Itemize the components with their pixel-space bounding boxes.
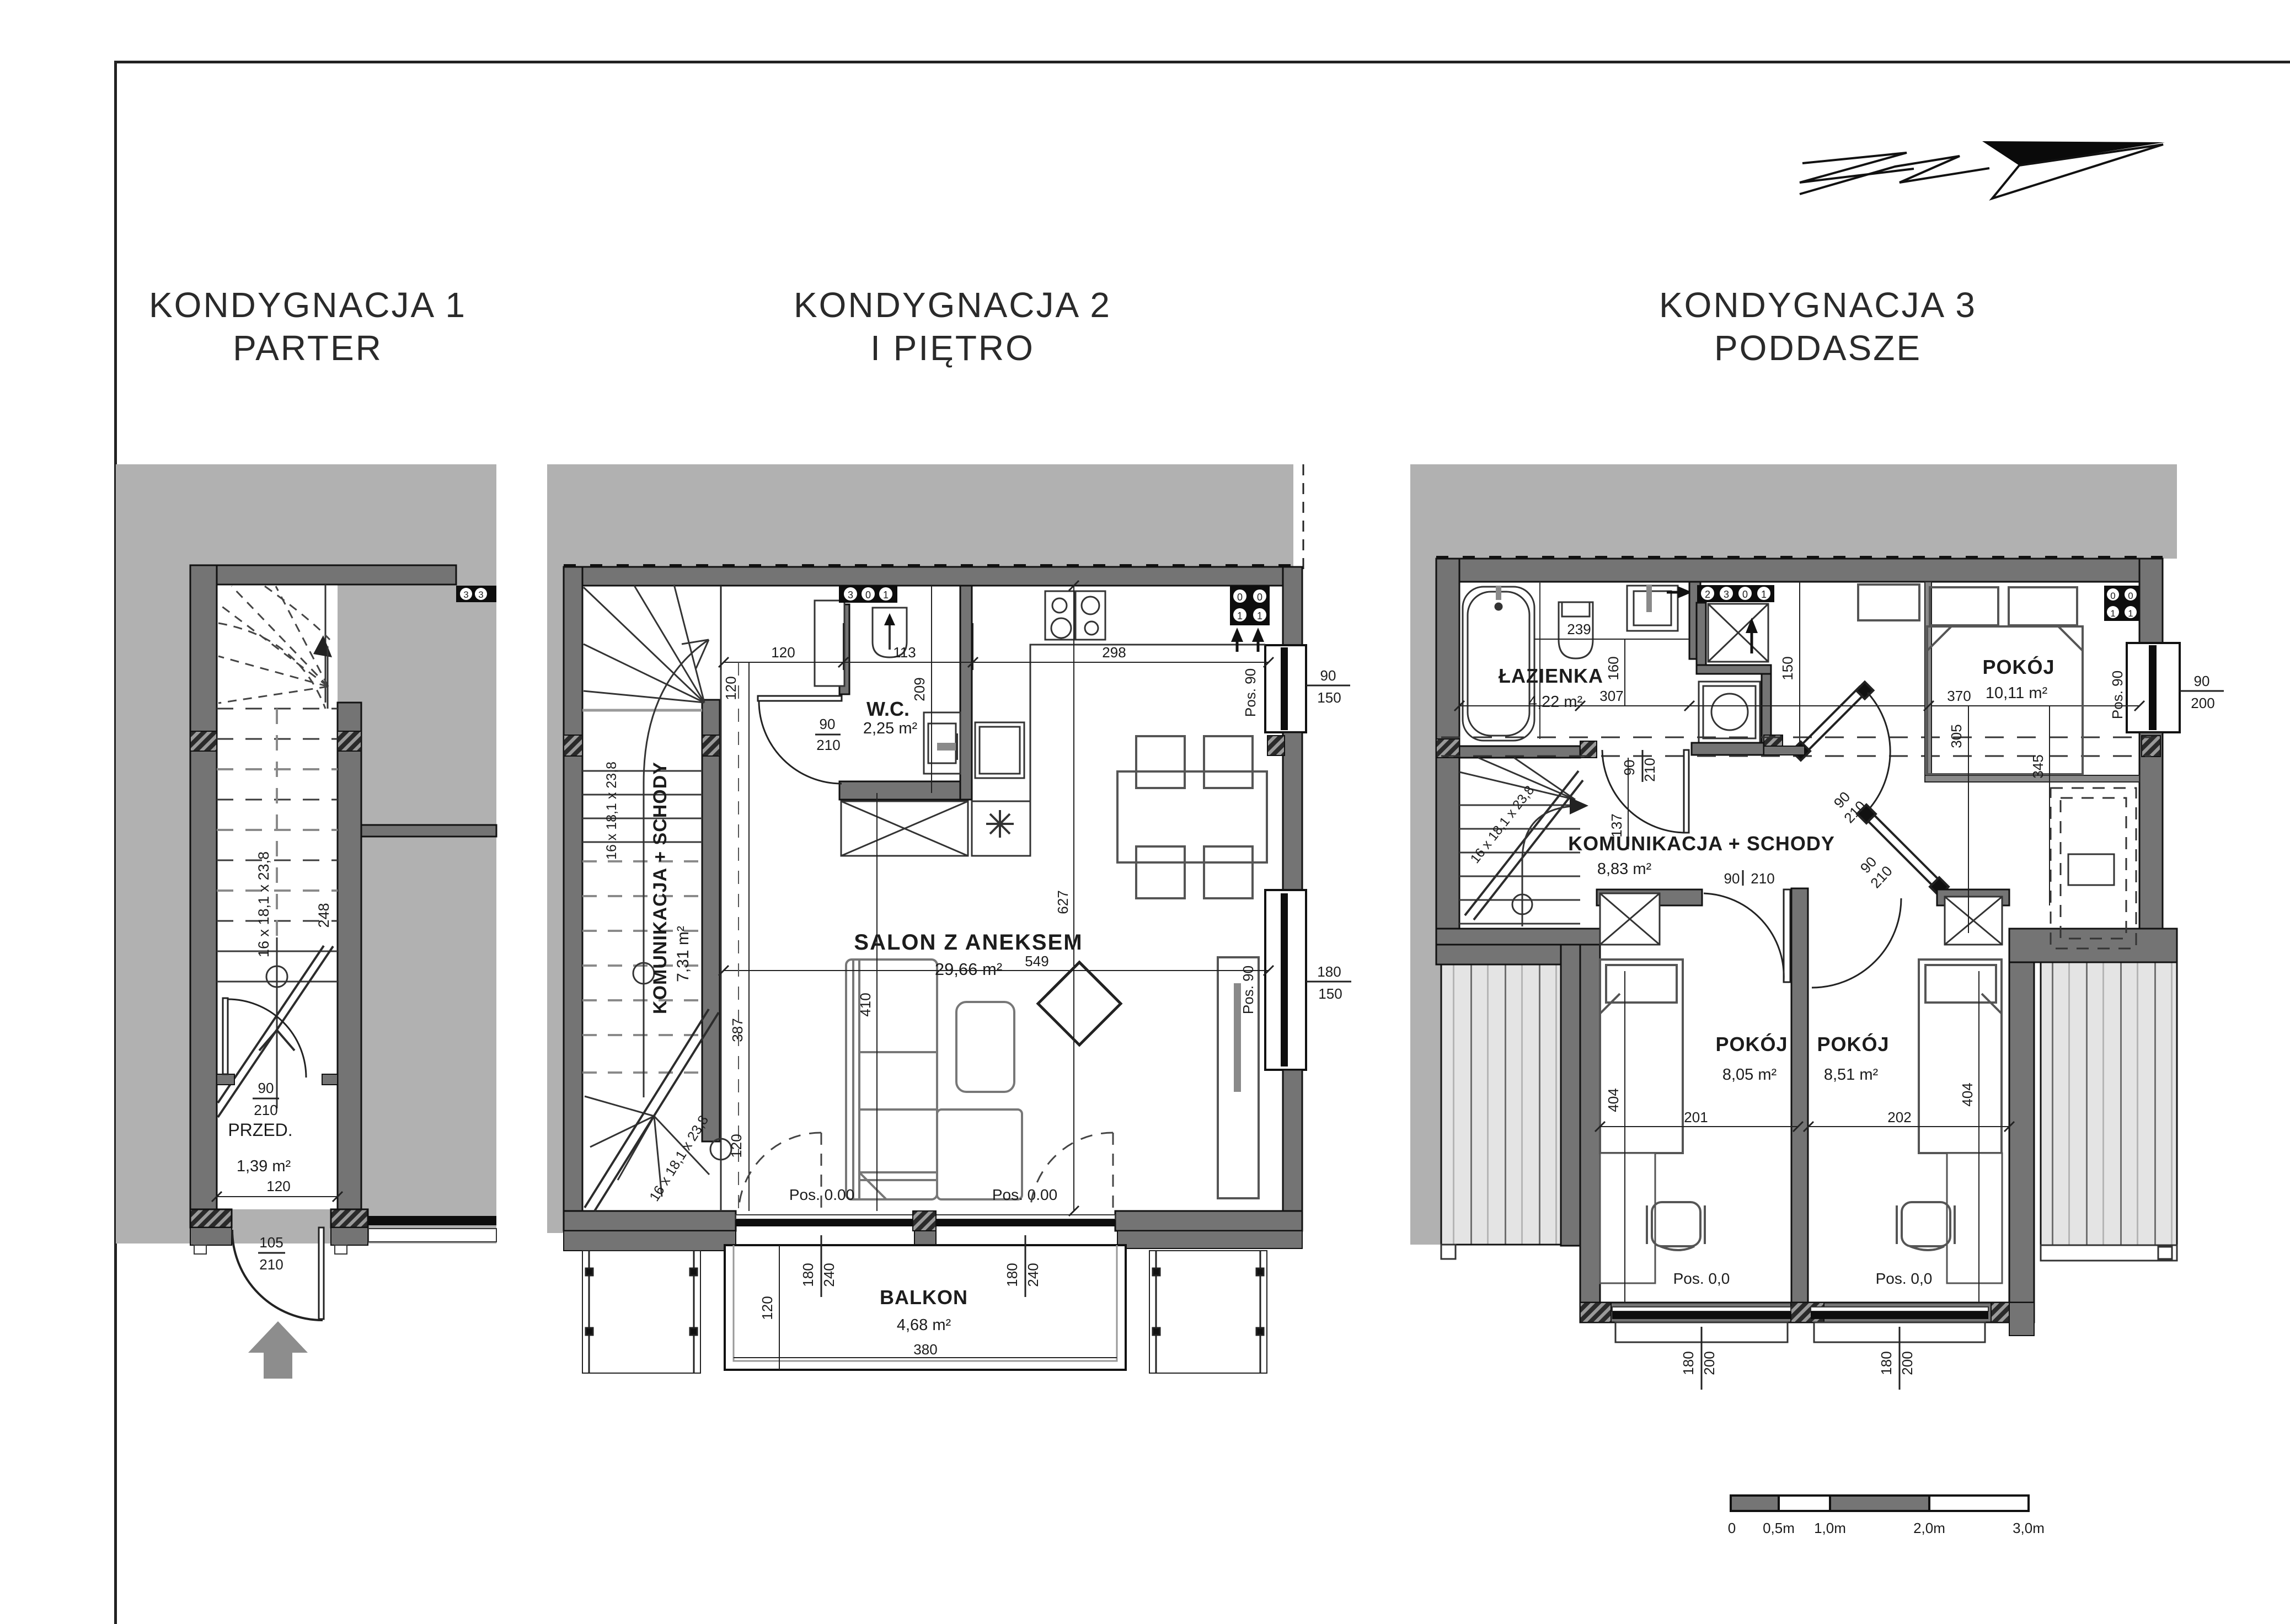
svg-text:180: 180 (1317, 963, 1341, 980)
svg-text:180: 180 (800, 1263, 816, 1287)
svg-text:BALKON: BALKON (880, 1286, 968, 1309)
svg-text:Pos. 90: Pos. 90 (1242, 668, 1259, 717)
svg-text:200: 200 (1899, 1351, 1916, 1375)
svg-text:90: 90 (1621, 760, 1638, 776)
svg-text:370: 370 (1947, 688, 1971, 704)
svg-text:200: 200 (2191, 695, 2214, 711)
svg-text:120: 120 (266, 1178, 290, 1194)
svg-text:2,25 m²: 2,25 m² (863, 720, 918, 737)
svg-text:240: 240 (1025, 1263, 1041, 1287)
svg-text:8,51 m²: 8,51 m² (1824, 1066, 1879, 1084)
svg-text:SALON Z ANEKSEM: SALON Z ANEKSEM (854, 930, 1083, 955)
svg-text:307: 307 (1599, 688, 1623, 704)
svg-text:0: 0 (1728, 1520, 1736, 1536)
svg-text:404: 404 (1959, 1082, 1976, 1106)
svg-text:113: 113 (893, 644, 916, 661)
svg-text:0: 0 (865, 589, 871, 601)
svg-text:210: 210 (1751, 870, 1774, 887)
svg-text:160: 160 (1605, 656, 1622, 680)
svg-text:1,0m: 1,0m (1814, 1520, 1846, 1536)
svg-text:180: 180 (1004, 1263, 1020, 1287)
svg-text:I PIĘTRO: I PIĘTRO (870, 328, 1035, 368)
svg-text:PODDASZE: PODDASZE (1714, 328, 1922, 368)
svg-text:POKÓJ: POKÓJ (1982, 655, 2054, 678)
svg-text:2,0m: 2,0m (1913, 1520, 1945, 1536)
svg-text:201: 201 (1684, 1109, 1708, 1125)
svg-text:10,11 m²: 10,11 m² (1986, 684, 2048, 702)
svg-text:3: 3 (463, 589, 468, 600)
svg-text:90: 90 (1320, 667, 1336, 684)
svg-text:POKÓJ: POKÓJ (1715, 1032, 1788, 1055)
svg-text:2: 2 (1705, 589, 1710, 600)
svg-text:W.C.: W.C. (866, 698, 909, 720)
svg-text:0: 0 (2110, 591, 2115, 601)
svg-text:210: 210 (254, 1102, 277, 1118)
svg-text:305: 305 (1948, 724, 1965, 748)
svg-text:8,83 m²: 8,83 m² (1597, 860, 1652, 878)
svg-text:KONDYGNACJA 2: KONDYGNACJA 2 (794, 285, 1111, 325)
svg-text:3: 3 (478, 589, 483, 600)
svg-text:627: 627 (1055, 890, 1071, 914)
svg-text:240: 240 (821, 1263, 837, 1287)
svg-text:0: 0 (1237, 592, 1243, 603)
svg-text:3: 3 (848, 589, 853, 601)
svg-text:POKÓJ: POKÓJ (1817, 1032, 1889, 1055)
svg-text:380: 380 (913, 1341, 937, 1358)
svg-text:1: 1 (1237, 610, 1243, 621)
svg-text:16 x 18,1 x 23,8: 16 x 18,1 x 23,8 (255, 851, 272, 957)
svg-text:KONDYGNACJA 1: KONDYGNACJA 1 (149, 285, 467, 325)
svg-text:KONDYGNACJA 3: KONDYGNACJA 3 (1659, 285, 1977, 325)
svg-text:0: 0 (1257, 592, 1262, 603)
svg-text:1: 1 (1257, 610, 1262, 621)
svg-text:1: 1 (2110, 608, 2115, 619)
svg-text:410: 410 (857, 993, 874, 1016)
svg-text:210: 210 (816, 737, 840, 753)
svg-text:345: 345 (2030, 754, 2046, 778)
svg-text:248: 248 (315, 903, 332, 928)
svg-text:387: 387 (729, 1018, 746, 1042)
svg-text:Pos. 0.00: Pos. 0.00 (992, 1186, 1057, 1203)
svg-text:3: 3 (1724, 589, 1729, 600)
svg-text:137: 137 (1608, 813, 1625, 837)
svg-text:1: 1 (883, 589, 889, 601)
svg-text:90: 90 (2194, 673, 2210, 689)
svg-text:Pos. 0,0: Pos. 0,0 (1876, 1270, 1933, 1287)
svg-text:120: 120 (759, 1296, 775, 1320)
svg-text:Pos. 90: Pos. 90 (2109, 671, 2126, 719)
svg-text:150: 150 (1318, 985, 1342, 1002)
svg-text:29,66 m²: 29,66 m² (935, 960, 1002, 979)
svg-text:8,05 m²: 8,05 m² (1722, 1066, 1777, 1084)
svg-text:1: 1 (1761, 589, 1767, 600)
svg-text:202: 202 (1887, 1109, 1911, 1125)
svg-text:4,68 m²: 4,68 m² (897, 1316, 951, 1334)
svg-text:150: 150 (1779, 656, 1796, 680)
svg-text:PRZED.: PRZED. (228, 1120, 292, 1140)
svg-text:0: 0 (2128, 591, 2133, 601)
svg-text:200: 200 (1701, 1351, 1717, 1375)
svg-text:105: 105 (259, 1234, 283, 1251)
svg-text:Pos. 0,0: Pos. 0,0 (1673, 1270, 1730, 1287)
svg-text:16 x 18,1 x 23,8: 16 x 18,1 x 23,8 (604, 762, 619, 860)
svg-text:KOMUNIKACJA + SCHODY: KOMUNIKACJA + SCHODY (650, 762, 671, 1014)
svg-text:150: 150 (1317, 689, 1341, 706)
svg-text:90: 90 (1724, 870, 1740, 887)
svg-text:404: 404 (1605, 1088, 1622, 1112)
svg-text:PARTER: PARTER (233, 328, 383, 368)
svg-text:1: 1 (2128, 608, 2133, 619)
svg-text:7,31 m²: 7,31 m² (674, 926, 692, 982)
svg-text:ŁAZIENKA: ŁAZIENKA (1499, 664, 1603, 687)
svg-text:4,22 m²: 4,22 m² (1528, 693, 1583, 711)
svg-text:210: 210 (259, 1256, 283, 1273)
svg-text:1,39 m²: 1,39 m² (237, 1157, 291, 1175)
svg-text:120: 120 (728, 1134, 745, 1157)
svg-text:90: 90 (258, 1080, 274, 1096)
svg-text:209: 209 (911, 677, 928, 701)
svg-text:298: 298 (1102, 644, 1126, 661)
svg-text:210: 210 (1641, 758, 1658, 781)
svg-text:180: 180 (1680, 1351, 1697, 1375)
svg-text:120: 120 (771, 644, 795, 661)
svg-text:Pos. 90: Pos. 90 (1240, 966, 1256, 1014)
svg-text:239: 239 (1567, 621, 1591, 637)
svg-text:120: 120 (723, 676, 739, 700)
svg-text:0,5m: 0,5m (1763, 1520, 1795, 1536)
svg-text:180: 180 (1878, 1351, 1895, 1375)
svg-text:549: 549 (1025, 953, 1048, 969)
svg-text:90: 90 (820, 716, 836, 732)
svg-text:3,0m: 3,0m (2013, 1520, 2045, 1536)
svg-text:0: 0 (1742, 589, 1748, 600)
